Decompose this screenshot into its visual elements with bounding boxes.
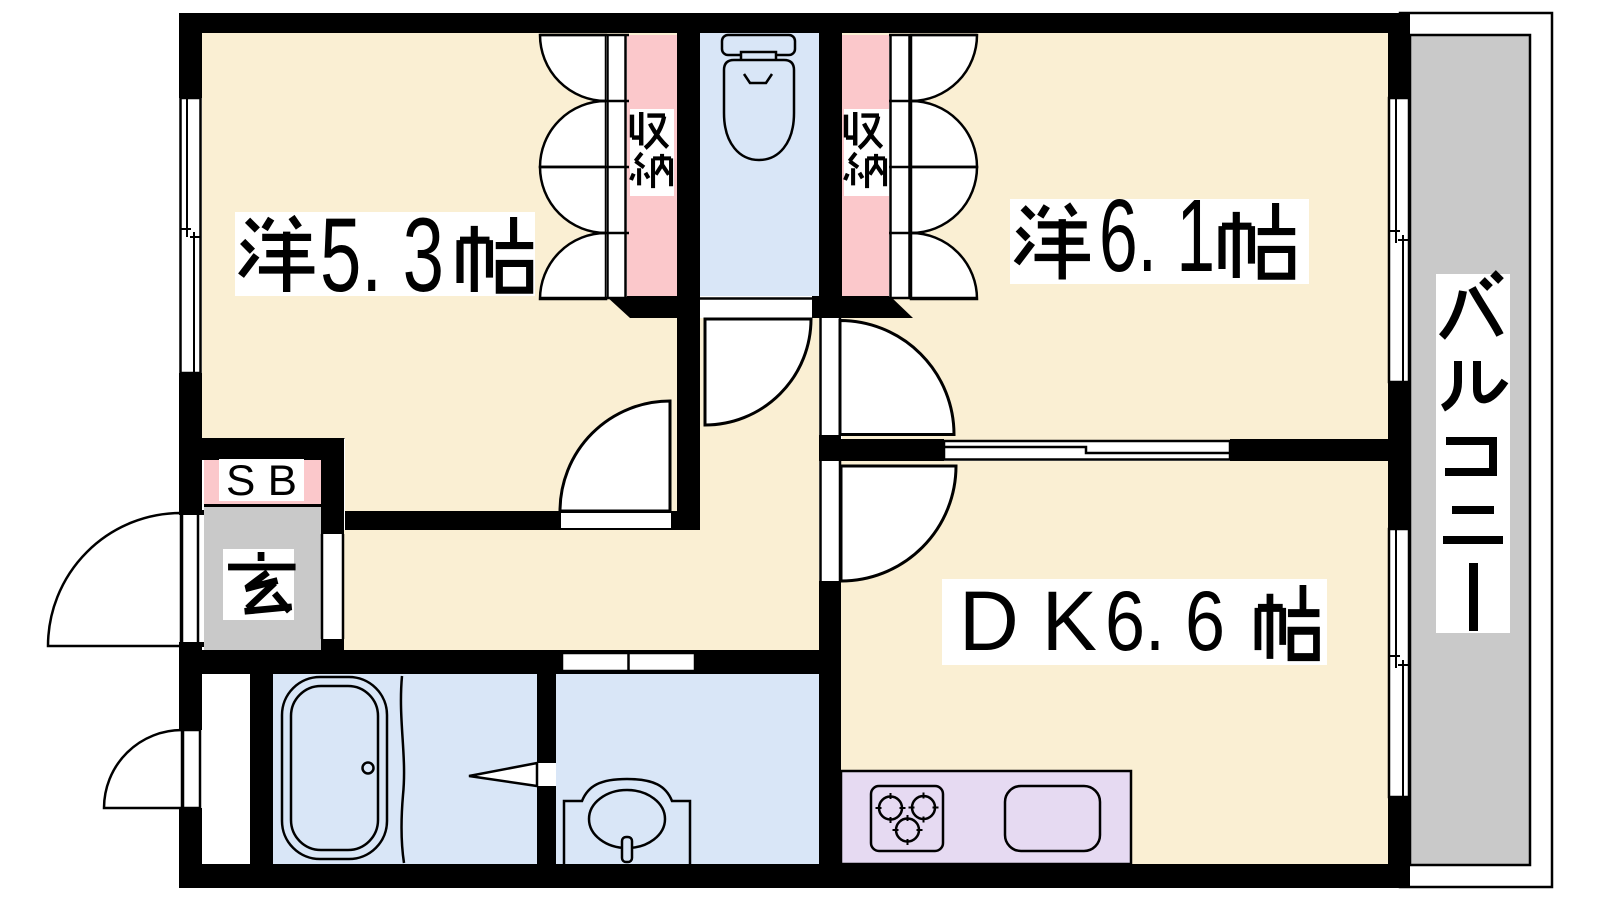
svg-text:D K: D K — [959, 574, 1097, 668]
svg-text:6. 1: 6. 1 — [1099, 178, 1215, 293]
svg-text:6. 6: 6. 6 — [1105, 574, 1225, 668]
svg-text:5. 3: 5. 3 — [320, 197, 444, 314]
svg-text:S B: S B — [226, 457, 297, 505]
